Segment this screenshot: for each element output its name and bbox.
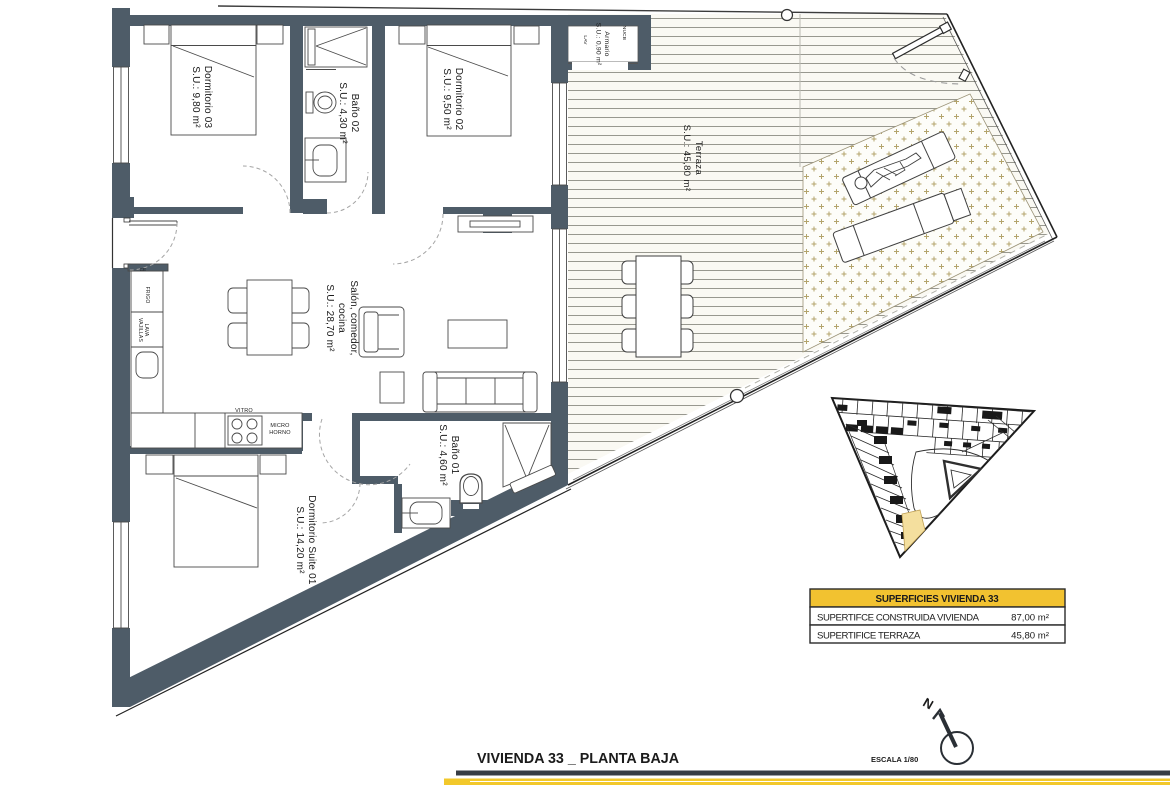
svg-text:Baño 01S.U.: 4,60 m²: Baño 01S.U.: 4,60 m² — [437, 424, 460, 486]
svg-text:ESCALA 1/80: ESCALA 1/80 — [871, 755, 918, 764]
svg-text:CE: CE — [140, 267, 147, 272]
svg-text:Terraza: Terraza — [693, 141, 704, 176]
svg-text:Dormitorio Suite 01S.U.: 14,20: Dormitorio Suite 01S.U.: 14,20 m² — [294, 495, 317, 585]
svg-text:FRIGO: FRIGO — [144, 287, 150, 304]
svg-text:87,00 m²: 87,00 m² — [1011, 613, 1050, 624]
svg-text:Salón, comedor,cocinaS.U.: 28,: Salón, comedor,cocinaS.U.: 28,70 m² — [324, 280, 359, 355]
svg-text:SUPERTIFCE CONSTRUIDA VIVIENDA: SUPERTIFCE CONSTRUIDA VIVIENDA — [817, 613, 980, 624]
svg-text:N: N — [920, 695, 936, 713]
svg-text:NUCB: NUCB — [621, 26, 627, 40]
svg-text:45,80 m²: 45,80 m² — [1011, 631, 1050, 642]
svg-text:VIVIENDA 33 _ PLANTA BAJA: VIVIENDA 33 _ PLANTA BAJA — [477, 751, 679, 767]
svg-text:SUPERTIFICE TERRAZA: SUPERTIFICE TERRAZA — [817, 631, 921, 642]
svg-text:VITRO: VITRO — [235, 408, 253, 414]
svg-text:LAV: LAV — [582, 35, 588, 45]
svg-text:MICROHORNO: MICROHORNO — [269, 423, 291, 436]
svg-text:Dormitorio 03S.U.: 9,80 m²: Dormitorio 03S.U.: 9,80 m² — [190, 66, 213, 129]
svg-text:Dormitorio 02S.U.: 9,50 m²: Dormitorio 02S.U.: 9,50 m² — [441, 68, 464, 131]
svg-text:Baño 02S.U.: 4,30 m²: Baño 02S.U.: 4,30 m² — [337, 82, 360, 144]
svg-text:SUPERFICIES VIVIENDA 33: SUPERFICIES VIVIENDA 33 — [876, 594, 1000, 605]
svg-text:S.U.: 45,80 m²: S.U.: 45,80 m² — [681, 125, 692, 192]
